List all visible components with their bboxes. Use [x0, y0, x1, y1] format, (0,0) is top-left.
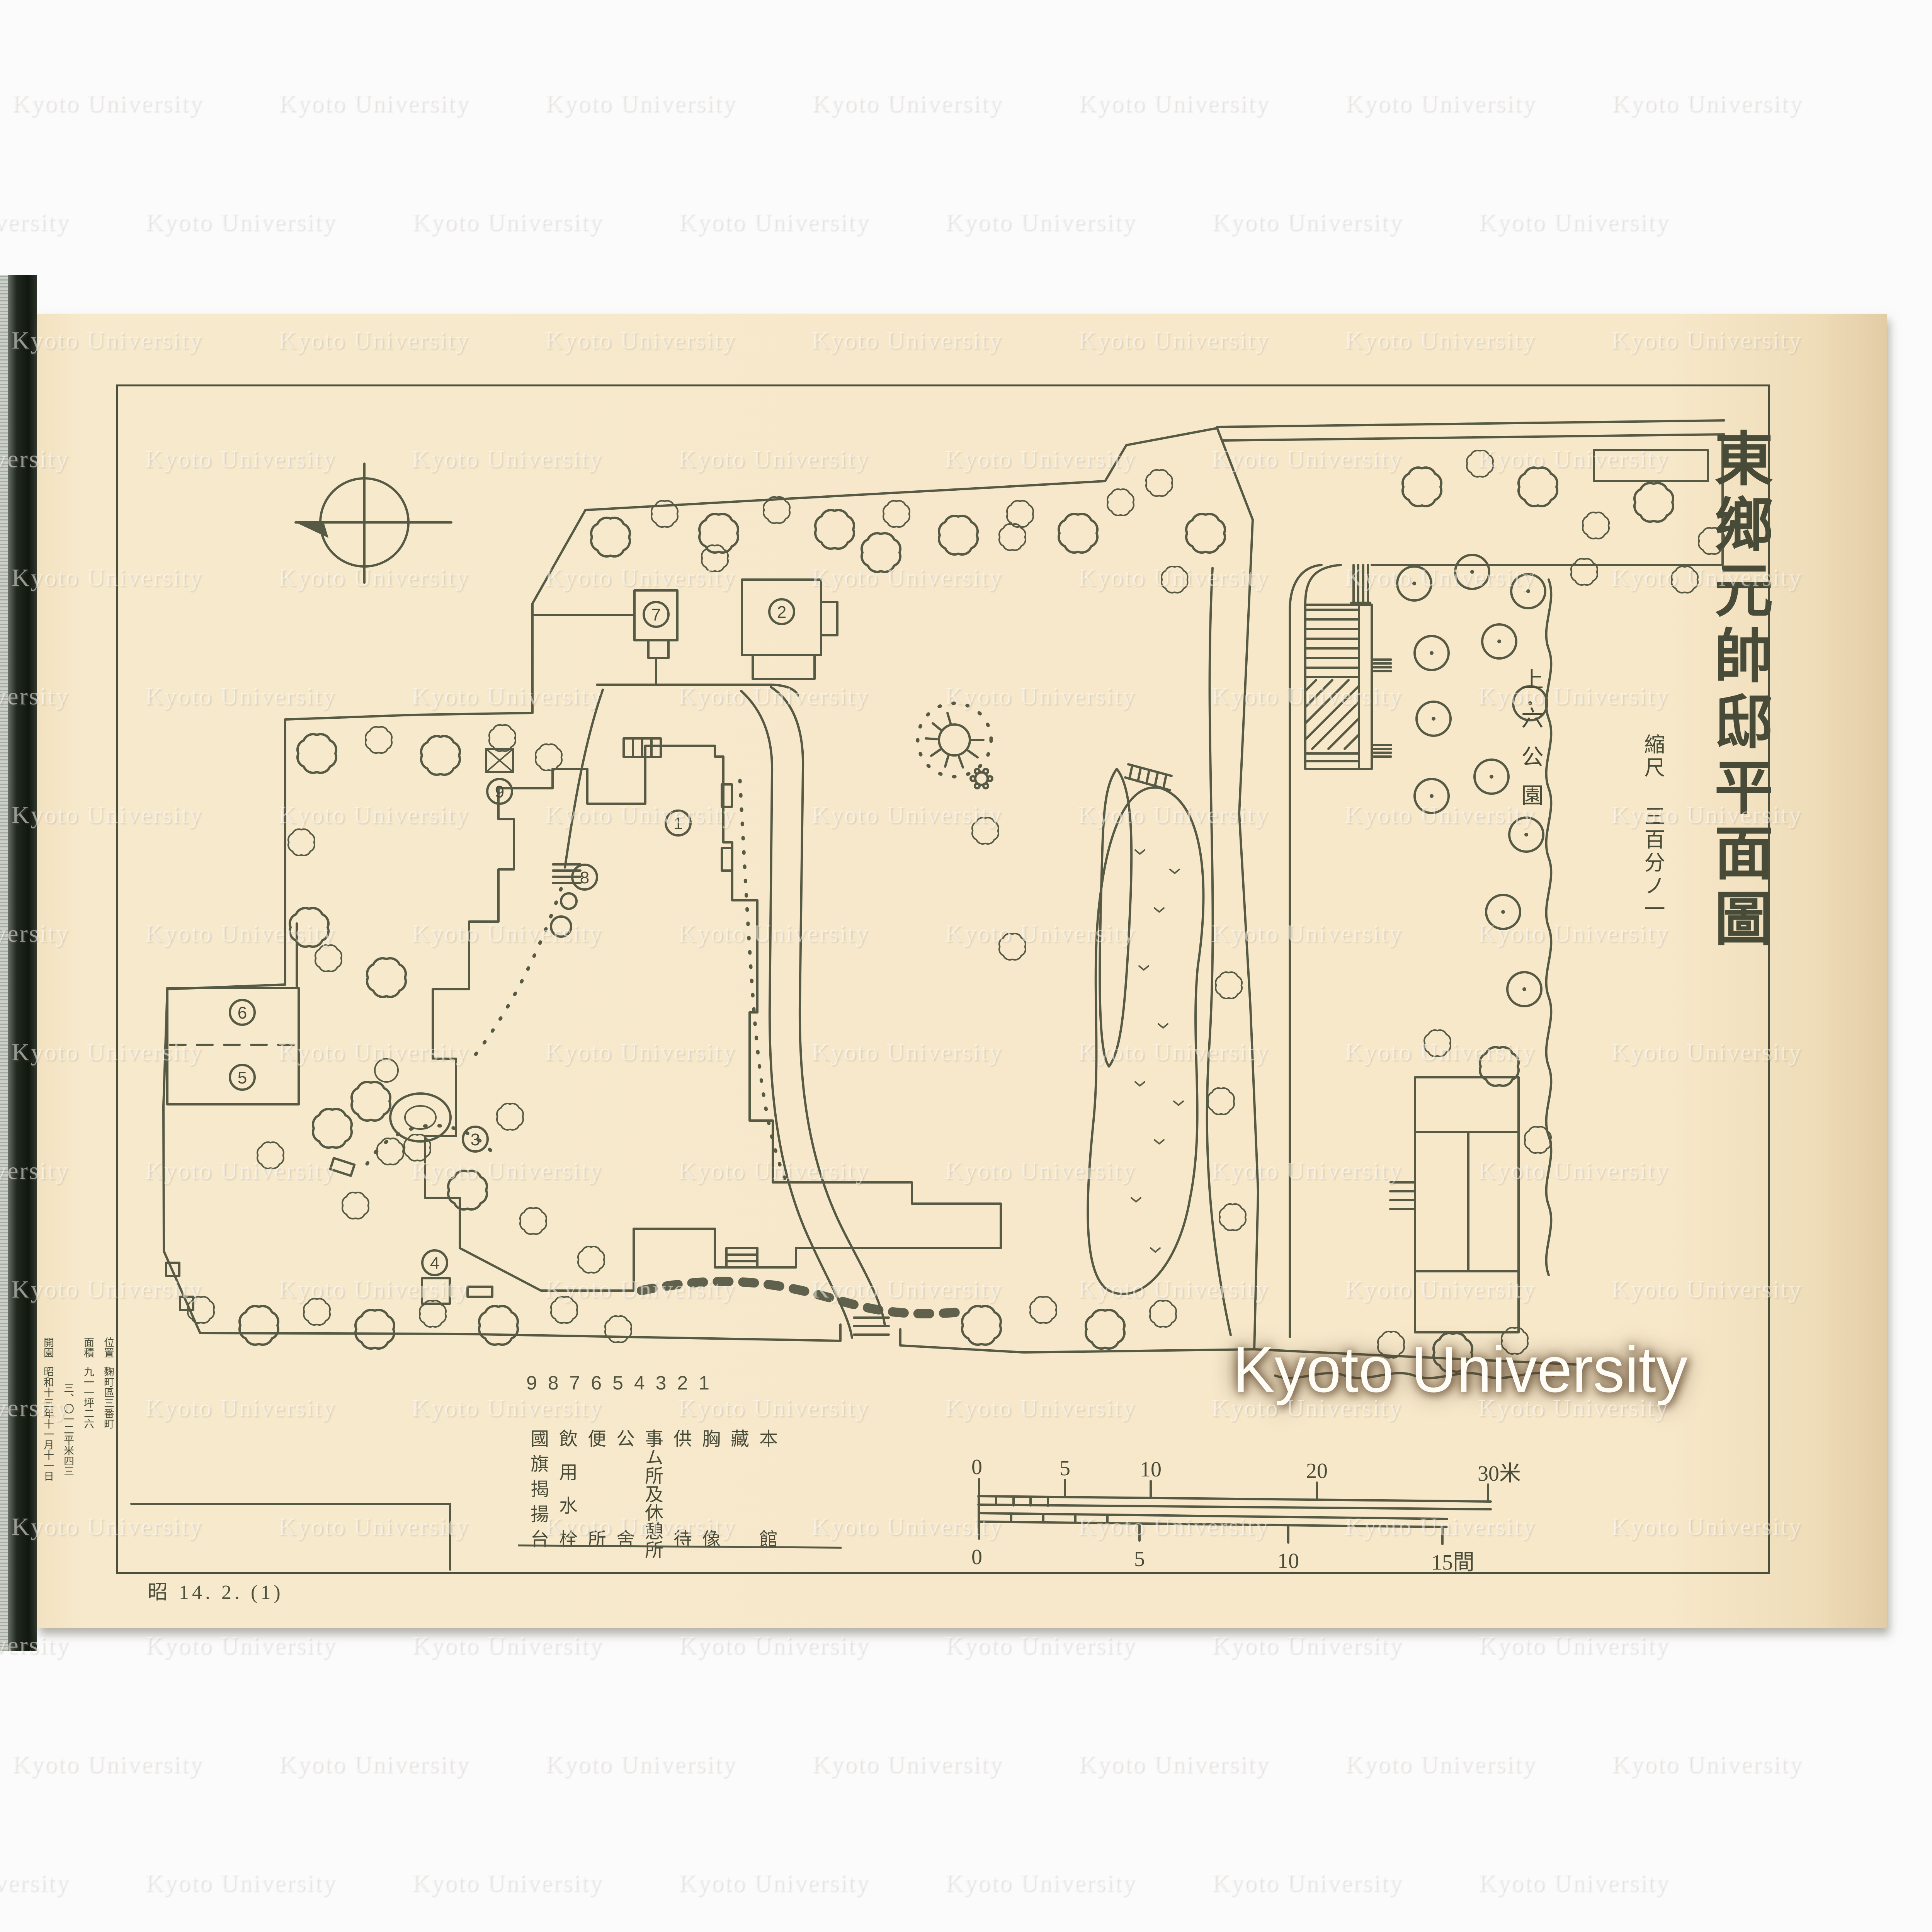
svg-text:15間: 15間	[1431, 1551, 1475, 1575]
svg-text:30米: 30米	[1478, 1462, 1521, 1486]
svg-text:10: 10	[1140, 1458, 1162, 1481]
park-stair-structure	[1305, 565, 1391, 769]
legend-numbers: 9 8 7 6 5 4 3 2 1	[526, 1372, 709, 1394]
tree-cluster	[188, 451, 1725, 1372]
legend-entry: 藏	[724, 1429, 751, 1548]
scan-page: { "document": {"stamp": "昭 14. 2. (1)"},…	[0, 0, 1932, 1932]
stepping-stones	[641, 1282, 958, 1314]
property-boundary	[163, 428, 1258, 1352]
flag-platform	[486, 749, 513, 772]
svg-text:10: 10	[1277, 1549, 1299, 1573]
legend-entry: 飲用水栓	[553, 1429, 580, 1548]
stepping-stone-path	[475, 889, 561, 1055]
info-row-area-sqm: 三、〇一二平米四三	[61, 1337, 76, 1507]
kyoto-university-watermark: Kyoto University	[1233, 1332, 1687, 1407]
scale-note-label: 縮尺	[1641, 733, 1664, 780]
svg-text:3: 3	[471, 1130, 480, 1149]
info-row-opened: 開園昭和十三年十一月十一日	[41, 1337, 56, 1507]
plan-marker-5: 5	[230, 1065, 255, 1090]
svg-text:9: 9	[495, 782, 504, 801]
plan-marker-1: 1	[666, 811, 690, 835]
compass-icon	[296, 464, 451, 583]
ornamental-mound	[918, 703, 991, 777]
garden-bridge	[1125, 764, 1172, 790]
svg-text:5: 5	[1060, 1456, 1070, 1480]
plan-marker-9: 9	[487, 779, 512, 804]
legend-entry: 供待	[667, 1429, 694, 1548]
plan-marker-7: 7	[644, 602, 668, 627]
park-building	[1390, 1077, 1519, 1332]
scale-bar: 0 5 10 20 30米 0 5 10 15間	[971, 1455, 1521, 1575]
svg-text:6: 6	[238, 1003, 247, 1022]
svg-text:5: 5	[238, 1068, 247, 1087]
legend-number: 5	[612, 1372, 623, 1394]
svg-text:7: 7	[651, 605, 661, 624]
info-row-location: 位置麴町區三番町	[101, 1337, 116, 1507]
outbuildings-west	[167, 923, 299, 1104]
scale-note: 縮尺三百分ノ一	[1638, 733, 1668, 921]
svg-text:5: 5	[1134, 1547, 1145, 1571]
plan-marker-6: 6	[230, 1000, 255, 1025]
frame-inner-box	[131, 1504, 450, 1570]
legend-entry: 胸像	[696, 1429, 723, 1548]
site-plan-drawing: 1 2 3 4 5 6 7 8 9 0 5 10 20 30米 0 5 10 1…	[0, 0, 1932, 1932]
info-block: 位置麴町區三番町 面積九一一坪二六 三、〇一二平米四三 開園昭和十三年十一月十一…	[36, 1337, 121, 1507]
info-row-area: 面積九一一坪二六	[81, 1337, 96, 1507]
legend-entry: 公舍	[610, 1429, 637, 1548]
plan-marker-2: 2	[769, 599, 794, 624]
legend-number: 1	[699, 1372, 709, 1394]
svg-text:20: 20	[1306, 1459, 1328, 1483]
garden-paths	[565, 568, 1231, 1338]
legend-number: 3	[656, 1372, 667, 1394]
legend-entries: 本館 藏 胸像 供待 事ム所及休憩所 公舍 便所 飲用水栓 國旗揭揚台	[522, 1429, 781, 1548]
legend-number: 9	[526, 1372, 537, 1394]
legend-number: 7	[570, 1372, 580, 1394]
svg-text:8: 8	[580, 868, 589, 887]
svg-text:2: 2	[777, 603, 786, 622]
lawn-mounds	[1088, 769, 1203, 1294]
legend-entry: 國旗揭揚台	[524, 1429, 551, 1548]
svg-text:0: 0	[971, 1455, 982, 1479]
svg-text:0: 0	[971, 1545, 982, 1569]
plan-marker-4: 4	[422, 1250, 447, 1275]
legend-number: 6	[591, 1372, 602, 1394]
legend-entry: 事ム所及休憩所	[638, 1429, 665, 1548]
legend-number: 2	[677, 1372, 688, 1394]
rock-garden	[330, 1059, 495, 1304]
legend-entry: 便所	[581, 1429, 608, 1548]
stepping-stone-path	[740, 781, 786, 1182]
svg-text:1: 1	[673, 814, 683, 833]
scale-note-value: 三百分ノ一	[1641, 805, 1664, 921]
archive-stamp: 昭 14. 2. (1)	[148, 1576, 284, 1605]
plan-marker-3: 3	[463, 1127, 488, 1151]
park-label: 上六公園	[1514, 668, 1546, 822]
flower-bed	[971, 769, 992, 788]
svg-text:4: 4	[430, 1254, 439, 1273]
main-building	[425, 746, 1001, 1291]
legend-entry: 本館	[753, 1429, 780, 1548]
legend-number: 8	[548, 1372, 559, 1394]
drinking-fountain	[551, 893, 577, 937]
page-title: 東鄉元帥邸平面圖	[1696, 428, 1781, 954]
legend-number: 4	[634, 1372, 645, 1394]
